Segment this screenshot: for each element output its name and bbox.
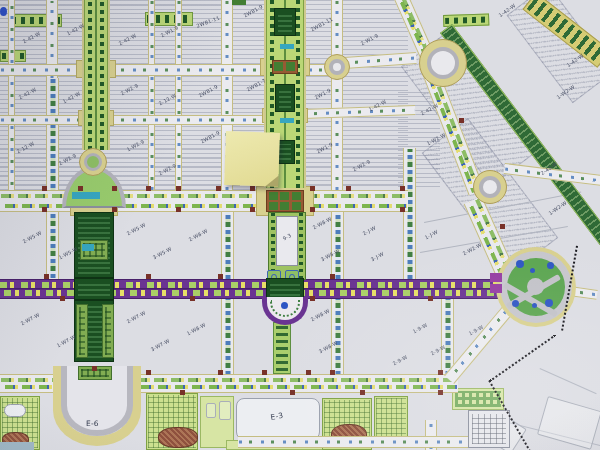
swatch: [269, 202, 278, 210]
node: [78, 186, 83, 191]
swatch: [280, 44, 294, 49]
node: [146, 186, 151, 191]
medgreen: [273, 322, 291, 374]
plot-label: 2-W5-W: [22, 230, 43, 244]
node: [216, 186, 221, 191]
sticky-note: [224, 131, 280, 187]
plot-label: 1-J-W: [424, 229, 439, 240]
frect: [206, 403, 216, 418]
node: [60, 296, 65, 301]
node: [306, 370, 311, 375]
node: [190, 296, 195, 301]
node: [290, 390, 295, 395]
mall-light: [102, 304, 114, 358]
rv: [331, 0, 343, 191]
dotc: [512, 300, 519, 307]
gblv: [84, 0, 108, 150]
rvm: [403, 148, 416, 280]
node: [146, 370, 151, 375]
node: [360, 390, 365, 395]
dotc: [0, 7, 7, 16]
node: [330, 370, 335, 375]
swatch: [280, 192, 289, 200]
node: [176, 207, 181, 212]
plot-label: E-3: [270, 412, 284, 422]
swatch: [82, 244, 94, 251]
swatch: [232, 0, 246, 5]
swatch: [490, 273, 502, 282]
node: [42, 207, 47, 212]
plot-label: 1-W8-W: [186, 322, 207, 336]
swatch: [280, 202, 289, 210]
node: [146, 274, 151, 279]
mall-dark: [74, 278, 114, 300]
swatch: [274, 62, 283, 71]
node: [310, 296, 315, 301]
dotc: [532, 303, 537, 308]
node: [459, 118, 464, 123]
node: [262, 370, 267, 375]
swatch: [269, 192, 278, 200]
plot-label: 2-W7-W: [126, 310, 147, 324]
dotc: [527, 278, 544, 295]
node: [250, 186, 255, 191]
plot-label: 2-W8-W: [188, 228, 209, 242]
node: [180, 390, 185, 395]
rv: [148, 0, 155, 191]
dotc: [530, 268, 535, 273]
rhM: [0, 190, 408, 212]
node: [400, 207, 405, 212]
node: [176, 186, 181, 191]
node: [310, 186, 315, 191]
swatch: [292, 192, 301, 200]
node: [330, 274, 335, 279]
node: [438, 370, 443, 375]
swatch: [280, 118, 294, 123]
node: [250, 207, 255, 212]
mall-white: [276, 216, 298, 266]
swatch: [286, 62, 295, 71]
plot-label: 3-W7-W: [150, 338, 171, 352]
dotc: [516, 260, 524, 268]
plot-label: 2-9-W: [392, 355, 408, 367]
node: [438, 390, 443, 395]
node: [44, 274, 49, 279]
node: [346, 186, 351, 191]
node: [400, 186, 405, 191]
rv: [8, 0, 15, 196]
node: [218, 370, 223, 375]
city-plan-map: 2-42-W1-42-W2-42-W2-W1-92WB1-112WB1-92WB…: [0, 0, 600, 450]
node: [92, 366, 97, 371]
swatch: [292, 202, 301, 210]
plot-label: 1-9-W: [412, 323, 428, 335]
rbg: [79, 148, 107, 176]
dotc: [547, 262, 554, 269]
mall-dark: [274, 8, 296, 36]
rvm: [331, 211, 344, 280]
rh: [0, 115, 268, 125]
bdash: [489, 334, 556, 382]
rvm: [331, 298, 344, 376]
node: [218, 274, 223, 279]
node: [428, 296, 433, 301]
line: [540, 368, 597, 394]
pond: [4, 404, 26, 417]
swatch: [0, 442, 34, 450]
plot-label: 3-W5-W: [152, 246, 173, 260]
swatch: [72, 192, 100, 199]
mall-light: [76, 304, 88, 358]
mound: [158, 427, 198, 448]
mall-dark: [275, 84, 295, 112]
rvm: [221, 298, 234, 376]
rh: [238, 436, 468, 448]
plot-label: 1-W2-W: [548, 200, 568, 216]
plot-label: 3-J-W: [370, 251, 385, 262]
rvm: [46, 78, 59, 279]
node: [112, 207, 117, 212]
dotc: [281, 302, 288, 309]
rb: [324, 54, 350, 80]
plot-label: 2-W5-W: [126, 222, 147, 236]
node: [500, 224, 505, 229]
rb: [419, 39, 467, 87]
rb: [473, 170, 507, 204]
node: [112, 186, 117, 191]
bldg: [468, 410, 510, 448]
frect: [537, 396, 600, 450]
plot-label: 2-W8-W: [312, 216, 333, 230]
plot-label: 2-W8-W: [310, 308, 331, 322]
node: [42, 186, 47, 191]
plot-label: 2-W7-W: [20, 312, 41, 326]
frect: [219, 401, 231, 420]
swatch: [490, 284, 502, 293]
dotc: [545, 299, 553, 307]
plot-label: E-6: [86, 420, 99, 428]
rvm: [221, 211, 234, 280]
plot-label: 2-J-W: [362, 225, 377, 236]
node: [310, 207, 315, 212]
